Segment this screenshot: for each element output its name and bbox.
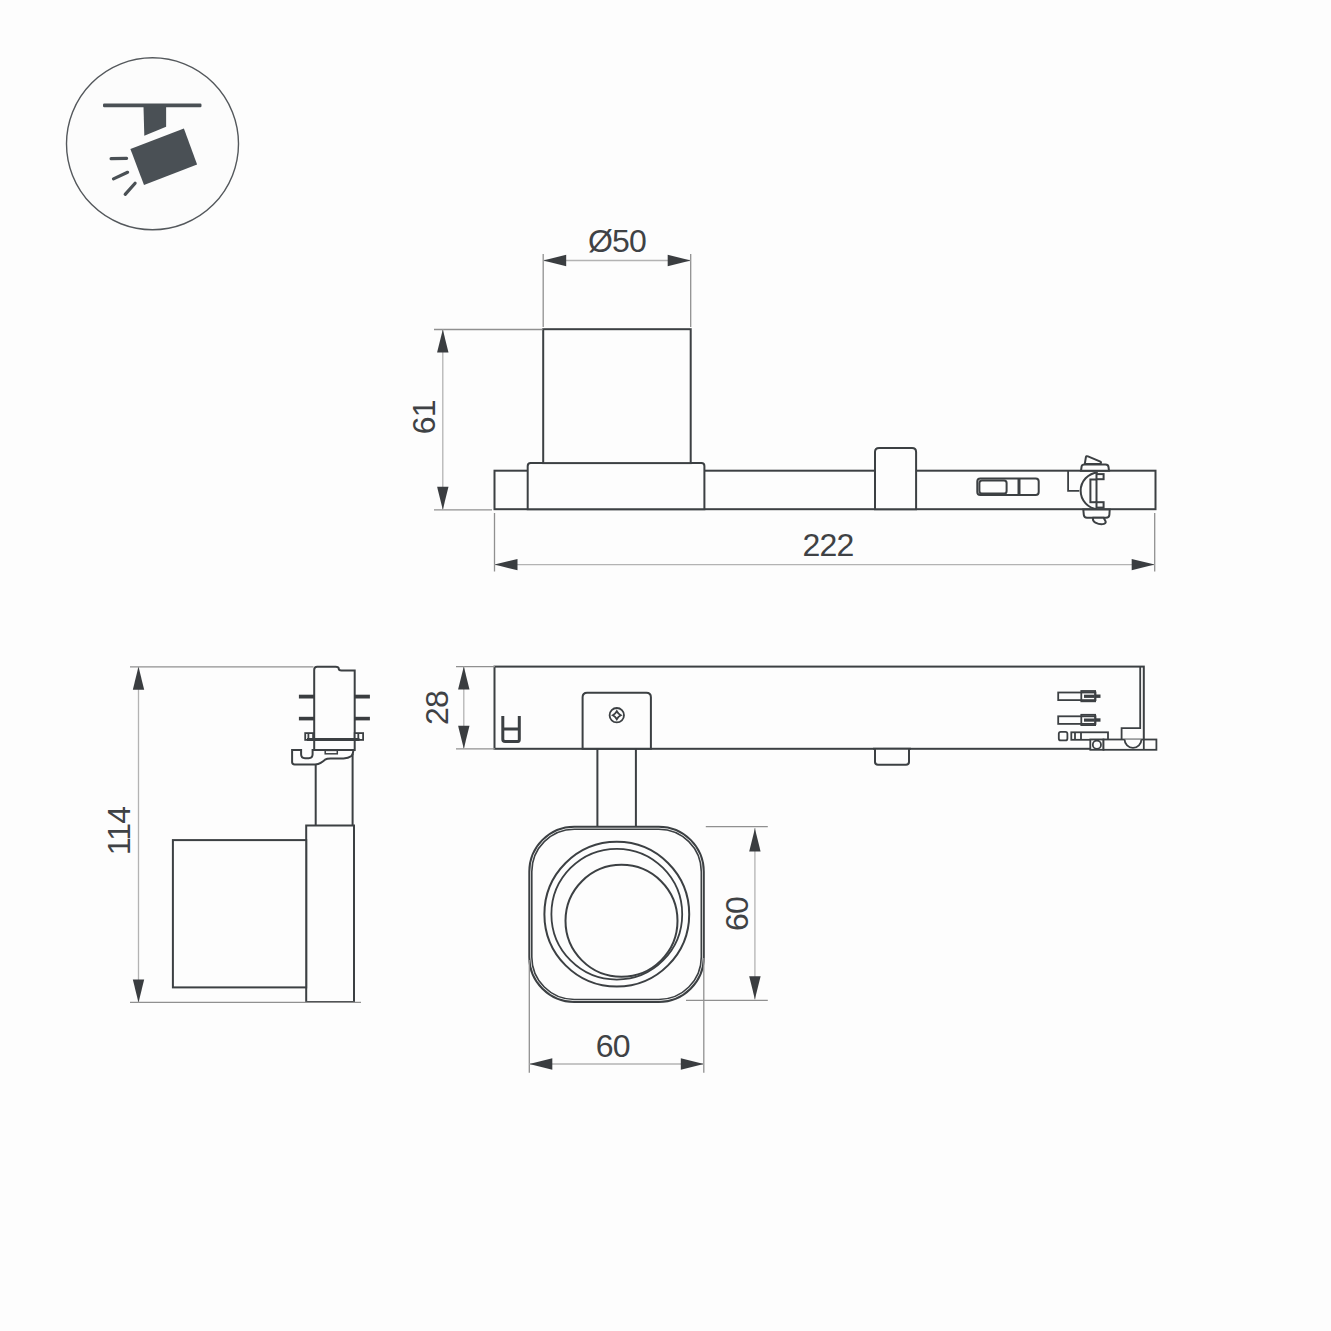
svg-text:28: 28	[419, 691, 455, 725]
svg-text:61: 61	[406, 400, 442, 434]
svg-text:222: 222	[803, 527, 854, 563]
svg-text:Ø50: Ø50	[588, 223, 646, 259]
svg-text:60: 60	[719, 897, 755, 931]
svg-text:60: 60	[596, 1028, 630, 1064]
svg-text:114: 114	[101, 807, 137, 856]
